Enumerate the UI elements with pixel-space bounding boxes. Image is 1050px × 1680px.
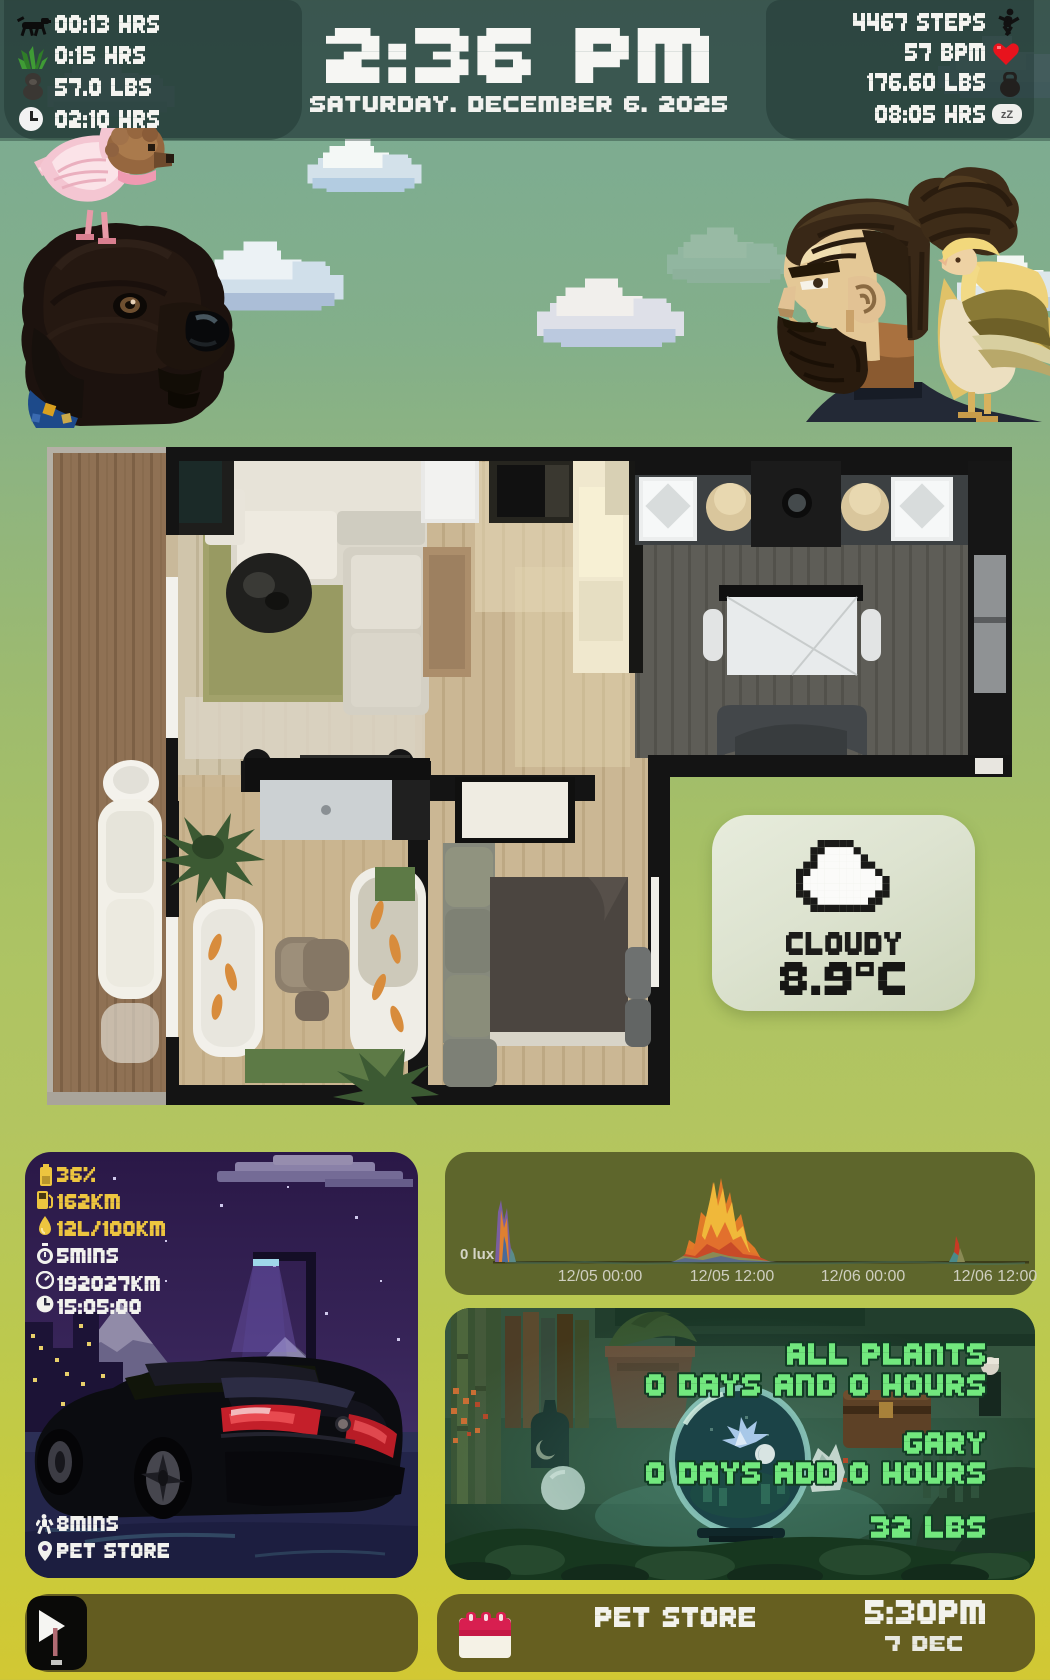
- svg-text:zZ: zZ: [1001, 109, 1014, 121]
